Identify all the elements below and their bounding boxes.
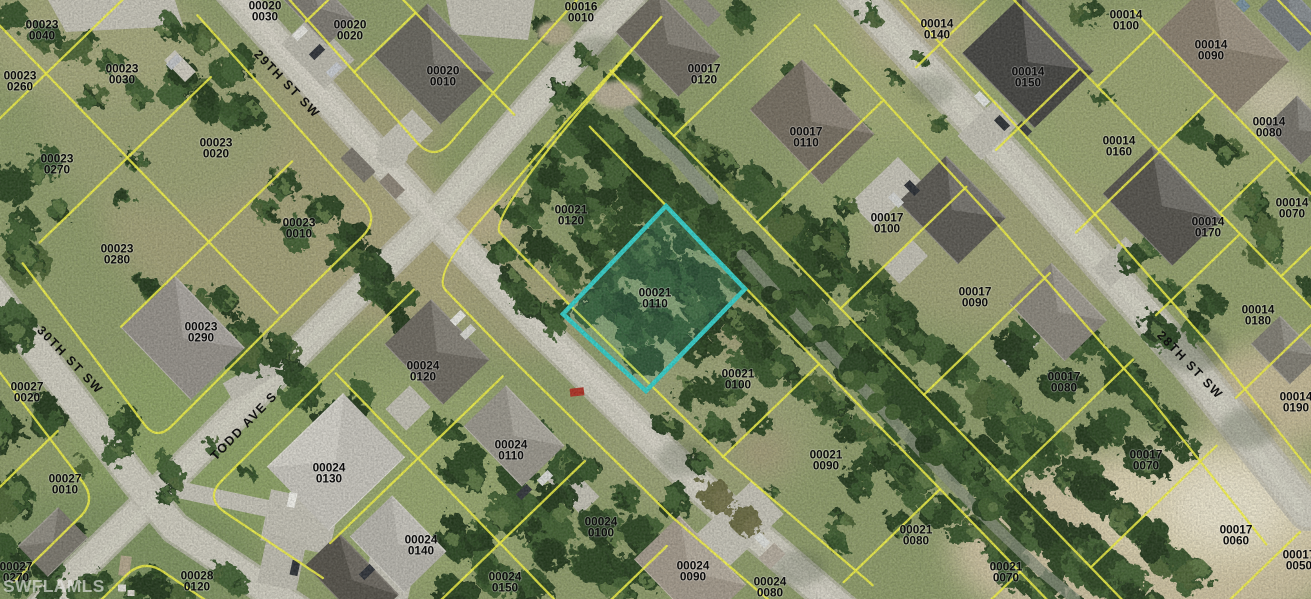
- svg-text:000230280: 000230280: [101, 242, 134, 267]
- svg-text:000140080: 000140080: [1253, 115, 1286, 140]
- svg-text:000230270: 000230270: [41, 152, 74, 177]
- svg-text:000140140: 000140140: [921, 17, 954, 42]
- svg-text:000140150: 000140150: [1012, 65, 1045, 90]
- svg-text:000140160: 000140160: [1103, 134, 1136, 159]
- svg-text:000170100: 000170100: [871, 211, 904, 236]
- svg-text:000210070: 000210070: [990, 560, 1023, 585]
- svg-text:000140170: 000140170: [1192, 215, 1225, 240]
- svg-text:000230260: 000230260: [4, 69, 37, 94]
- svg-text:SWFLAMLS: SWFLAMLS: [3, 576, 105, 596]
- svg-text:000230290: 000230290: [185, 320, 218, 345]
- svg-text:000170090: 000170090: [959, 285, 992, 310]
- svg-text:000240130: 000240130: [313, 461, 346, 486]
- svg-text:000210110: 000210110: [639, 286, 672, 311]
- svg-text:000280120: 000280120: [181, 569, 214, 594]
- svg-text:000270010: 000270010: [49, 472, 82, 497]
- svg-text:000170080: 000170080: [1048, 370, 1081, 395]
- svg-text:000230010: 000230010: [283, 216, 316, 241]
- svg-text:000240110: 000240110: [495, 438, 528, 463]
- svg-text:000230030: 000230030: [106, 62, 139, 87]
- svg-text:000140070: 000140070: [1276, 196, 1309, 221]
- svg-text:000170060: 000170060: [1220, 523, 1253, 548]
- svg-text:000170050: 000170050: [1283, 548, 1311, 573]
- svg-text:000230040: 000230040: [26, 18, 59, 43]
- svg-text:000140190: 000140190: [1280, 390, 1311, 415]
- svg-text:000240080: 000240080: [754, 575, 787, 599]
- svg-text:000140090: 000140090: [1195, 38, 1228, 63]
- svg-text:000210120: 000210120: [555, 203, 588, 228]
- svg-text:000200010: 000200010: [427, 64, 460, 89]
- svg-text:000200020: 000200020: [334, 18, 367, 43]
- svg-text:000210090: 000210090: [810, 448, 843, 473]
- svg-text:000270020: 000270020: [11, 380, 44, 405]
- svg-text:000240150: 000240150: [489, 570, 522, 595]
- svg-text:000170070: 000170070: [1130, 448, 1163, 473]
- svg-text:000210080: 000210080: [900, 523, 933, 548]
- svg-text:000160010: 000160010: [565, 0, 598, 25]
- svg-text:000140100: 000140100: [1110, 8, 1143, 33]
- svg-text:000210100: 000210100: [722, 367, 755, 392]
- svg-text:000240140: 000240140: [405, 533, 438, 558]
- svg-text:000240100: 000240100: [585, 515, 618, 540]
- svg-text:000240090: 000240090: [677, 559, 710, 584]
- svg-text:000140180: 000140180: [1242, 303, 1275, 328]
- svg-text:000170120: 000170120: [688, 62, 721, 87]
- svg-text:000170110: 000170110: [790, 125, 823, 150]
- svg-text:000230020: 000230020: [200, 136, 233, 161]
- svg-text:000200030: 000200030: [249, 0, 282, 24]
- svg-text:000240120: 000240120: [407, 359, 440, 384]
